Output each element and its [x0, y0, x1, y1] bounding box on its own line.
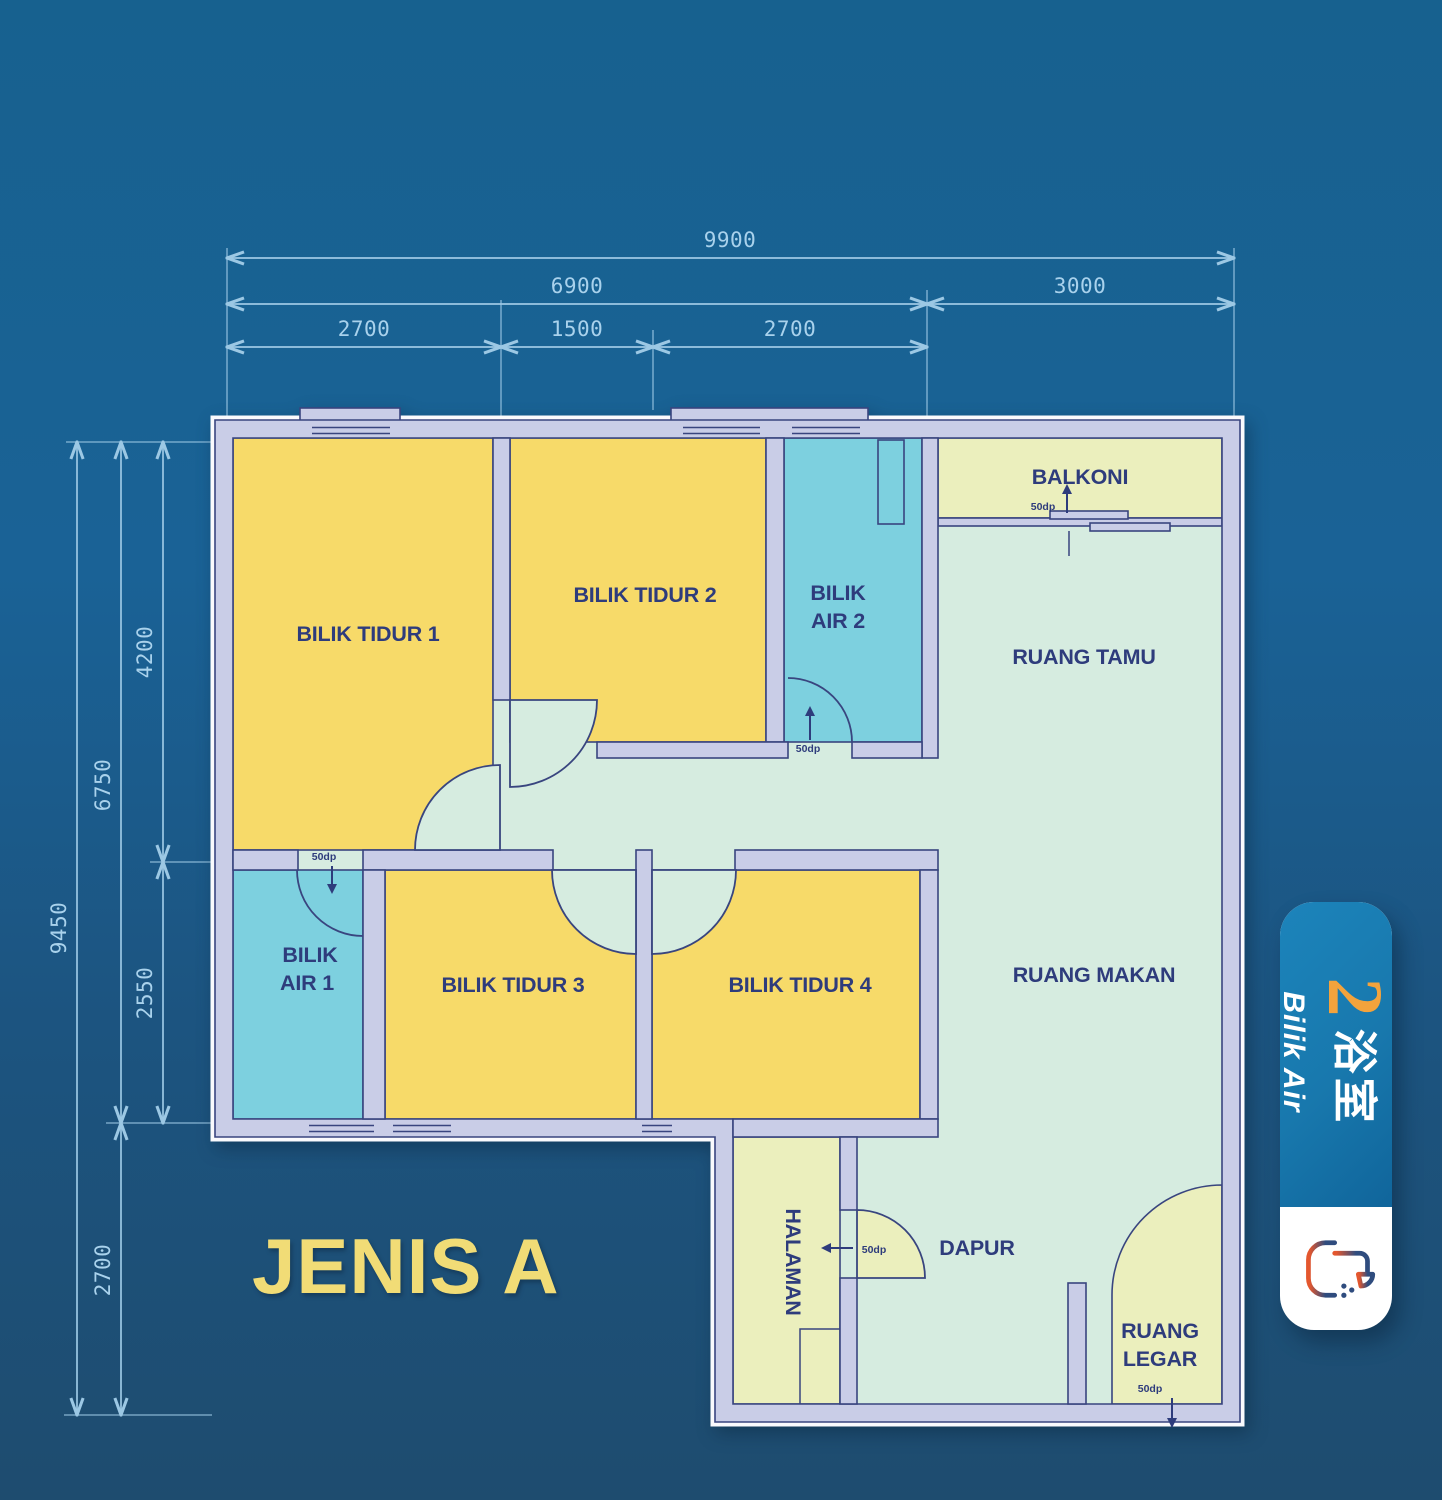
balcony-sliding-door-a	[1050, 511, 1128, 519]
dim-label-3000: 3000	[1054, 274, 1107, 298]
label-ruang-tamu: RUANG TAMU	[1012, 645, 1155, 669]
bathroom-count: 2	[1316, 977, 1394, 1016]
wall-ba2-tamu	[922, 438, 938, 758]
dim-top-segments: 2700 1500 2700	[227, 317, 927, 347]
wall-bt1-bt2	[493, 438, 510, 700]
anno-balkoni: 50dp	[1031, 501, 1056, 513]
bathtub-icon	[1294, 1227, 1378, 1311]
anno-dapur: 50dp	[862, 1244, 887, 1256]
label-bilik-tidur-2: BILIK TIDUR 2	[573, 583, 716, 607]
dim-label-2700-c: 2700	[91, 1244, 115, 1297]
floor-plan-poster: 9900 6900 3000 2700 1500 2700 9450 6750 …	[0, 0, 1442, 1500]
wall-bt2-ba2	[766, 438, 784, 742]
plan-type-title: JENIS A	[252, 1222, 560, 1310]
bathroom-label-malay: Bilik Air	[1278, 991, 1308, 1112]
dim-top-total: 9900	[227, 228, 1234, 258]
wall-corridor-north-right	[852, 742, 922, 758]
label-ruang-legar-line1: RUANG	[1121, 1319, 1199, 1343]
floor-plan-drawing: 9900 6900 3000 2700 1500 2700 9450 6750 …	[0, 0, 1442, 1500]
dim-label-4200: 4200	[133, 626, 157, 679]
label-bilik-tidur-3: BILIK TIDUR 3	[441, 973, 584, 997]
bathroom-badge-blue-section: 2 浴室 Bilik Air	[1280, 902, 1392, 1207]
wall-mid-right	[735, 850, 938, 870]
dim-label-9450: 9450	[47, 902, 71, 955]
label-dapur: DAPUR	[939, 1236, 1015, 1260]
wall-bt4-makan	[920, 870, 938, 1119]
label-ruang-legar-line2: LEGAR	[1123, 1347, 1198, 1371]
dim-label-2550: 2550	[133, 967, 157, 1020]
label-bilik-air-2-line2: AIR 2	[811, 609, 865, 633]
wall-mid-center	[363, 850, 553, 870]
wall-bt3-bt4	[636, 850, 652, 1119]
label-halaman: HALAMAN	[781, 1208, 805, 1315]
dim-label-2700-a: 2700	[338, 317, 391, 341]
label-balkoni: BALKONI	[1032, 465, 1129, 489]
anno-bilik-air-1: 50dp	[312, 851, 337, 863]
bathroom-badge-icon-section	[1280, 1207, 1392, 1330]
bathroom-count-badge: 2 浴室 Bilik Air	[1280, 902, 1392, 1330]
balcony-sliding-door-b	[1090, 523, 1170, 531]
label-bilik-air-2-line1: BILIK	[810, 581, 866, 605]
anno-ruang-legar: 50dp	[1138, 1383, 1163, 1395]
wall-ba1-bt3	[363, 870, 385, 1119]
wall-halaman-dapur-lower	[840, 1278, 857, 1404]
label-bilik-air-1-line1: BILIK	[282, 943, 338, 967]
wall-halaman-dapur-upper	[840, 1137, 857, 1210]
dim-label-6900: 6900	[551, 274, 604, 298]
bathroom-label-chinese: 浴室	[1333, 1028, 1378, 1126]
label-ruang-makan: RUANG MAKAN	[1013, 963, 1176, 987]
anno-bilik-air-2: 50dp	[796, 743, 821, 755]
dim-label-1500: 1500	[551, 317, 604, 341]
dim-top-groups: 6900 3000	[227, 274, 1234, 304]
wall-corridor-north-left	[597, 742, 788, 758]
label-bilik-tidur-4: BILIK TIDUR 4	[728, 973, 871, 997]
label-bilik-tidur-1: BILIK TIDUR 1	[296, 622, 439, 646]
wall-mid-left	[233, 850, 298, 870]
wall-legar-left	[1068, 1283, 1086, 1404]
dim-label-2700-b: 2700	[764, 317, 817, 341]
wall-bt4-dapur	[733, 1119, 938, 1137]
dim-left-groups: 6750 2700	[91, 442, 121, 1415]
dim-left-total: 9450	[47, 442, 77, 1415]
dim-label-6750: 6750	[91, 759, 115, 812]
label-bilik-air-1-line2: AIR 1	[280, 971, 334, 995]
dim-label-9900: 9900	[704, 228, 757, 252]
dim-left-segments: 4200 2550	[133, 442, 163, 1123]
